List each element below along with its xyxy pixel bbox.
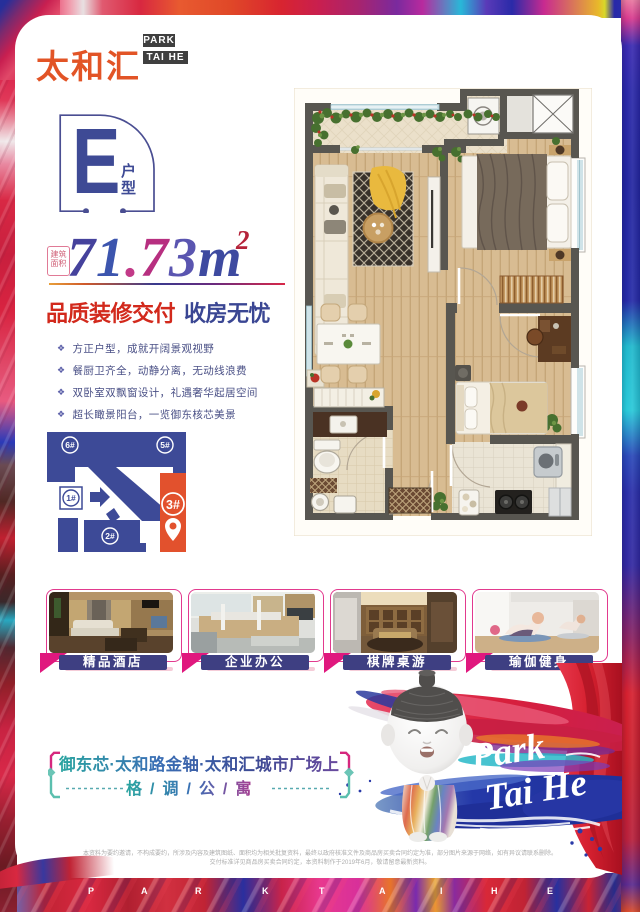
svg-text:6#: 6# xyxy=(65,440,75,450)
svg-text:3#: 3# xyxy=(166,498,180,512)
svg-text:2#: 2# xyxy=(105,531,115,541)
svg-text:5#: 5# xyxy=(160,440,170,450)
svg-text:御东芯·太和路金轴·太和汇城市广场上: 御东芯·太和路金轴·太和汇城市广场上 xyxy=(58,754,339,774)
svg-text:格/调/公/寓: 格/调/公/寓 xyxy=(126,779,259,798)
svg-text:1#: 1# xyxy=(66,493,76,503)
